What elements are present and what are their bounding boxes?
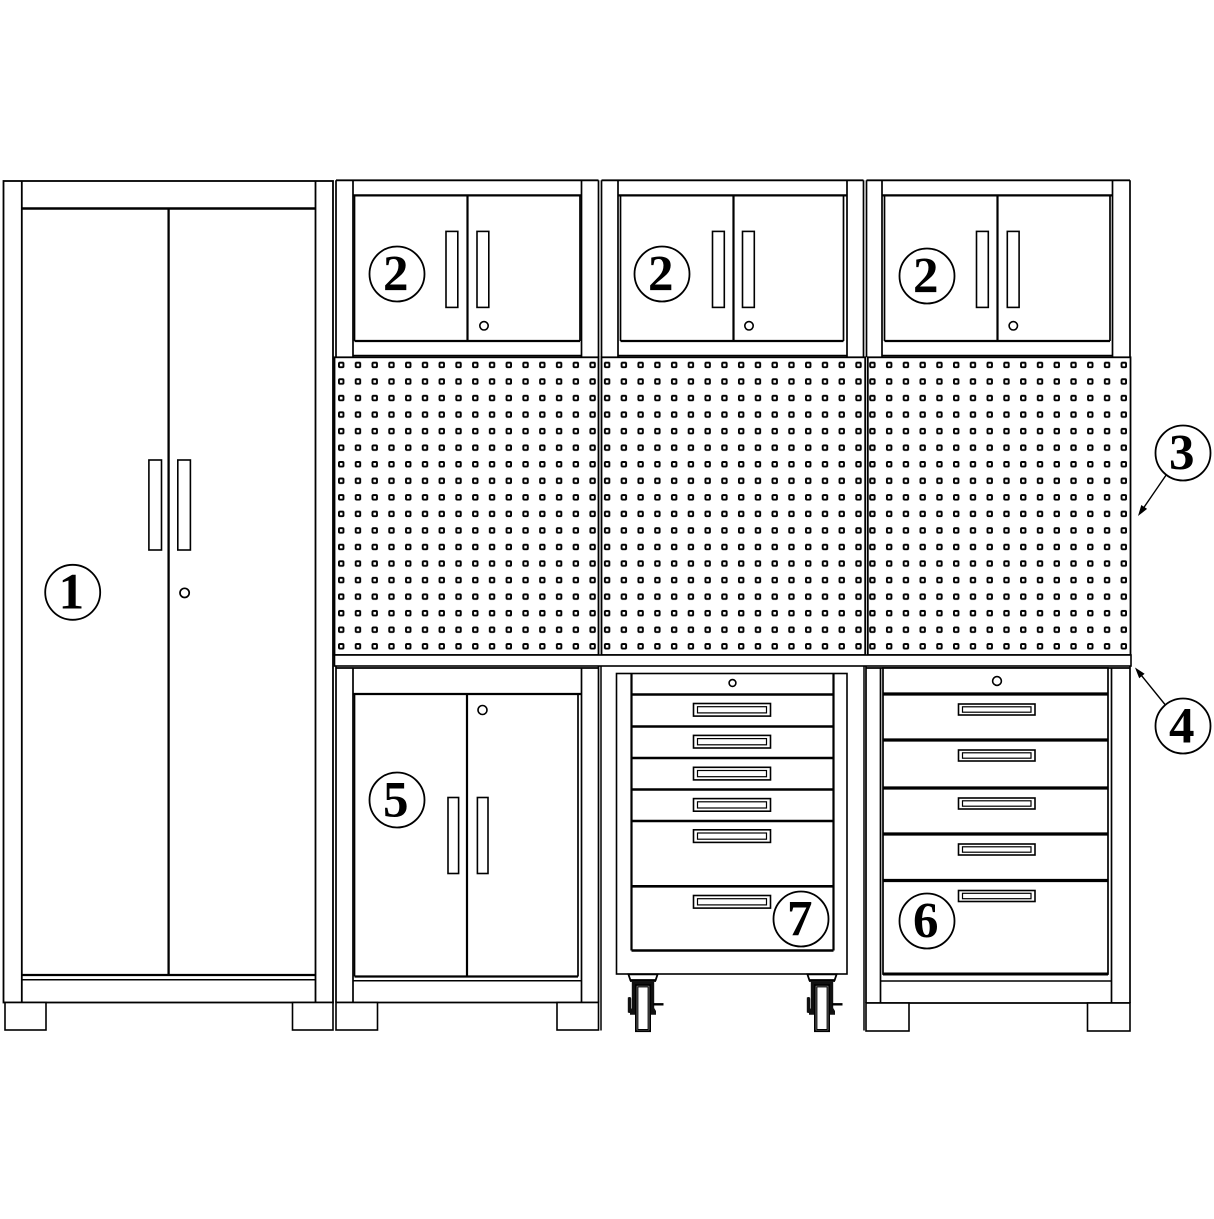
svg-text:7: 7 bbox=[787, 891, 813, 947]
svg-text:2: 2 bbox=[383, 246, 409, 302]
svg-text:5: 5 bbox=[383, 772, 409, 828]
svg-text:1: 1 bbox=[59, 565, 85, 621]
svg-text:2: 2 bbox=[648, 246, 674, 302]
svg-text:4: 4 bbox=[1169, 698, 1195, 754]
svg-text:2: 2 bbox=[913, 248, 939, 304]
svg-text:3: 3 bbox=[1169, 425, 1195, 481]
svg-text:6: 6 bbox=[913, 893, 939, 949]
